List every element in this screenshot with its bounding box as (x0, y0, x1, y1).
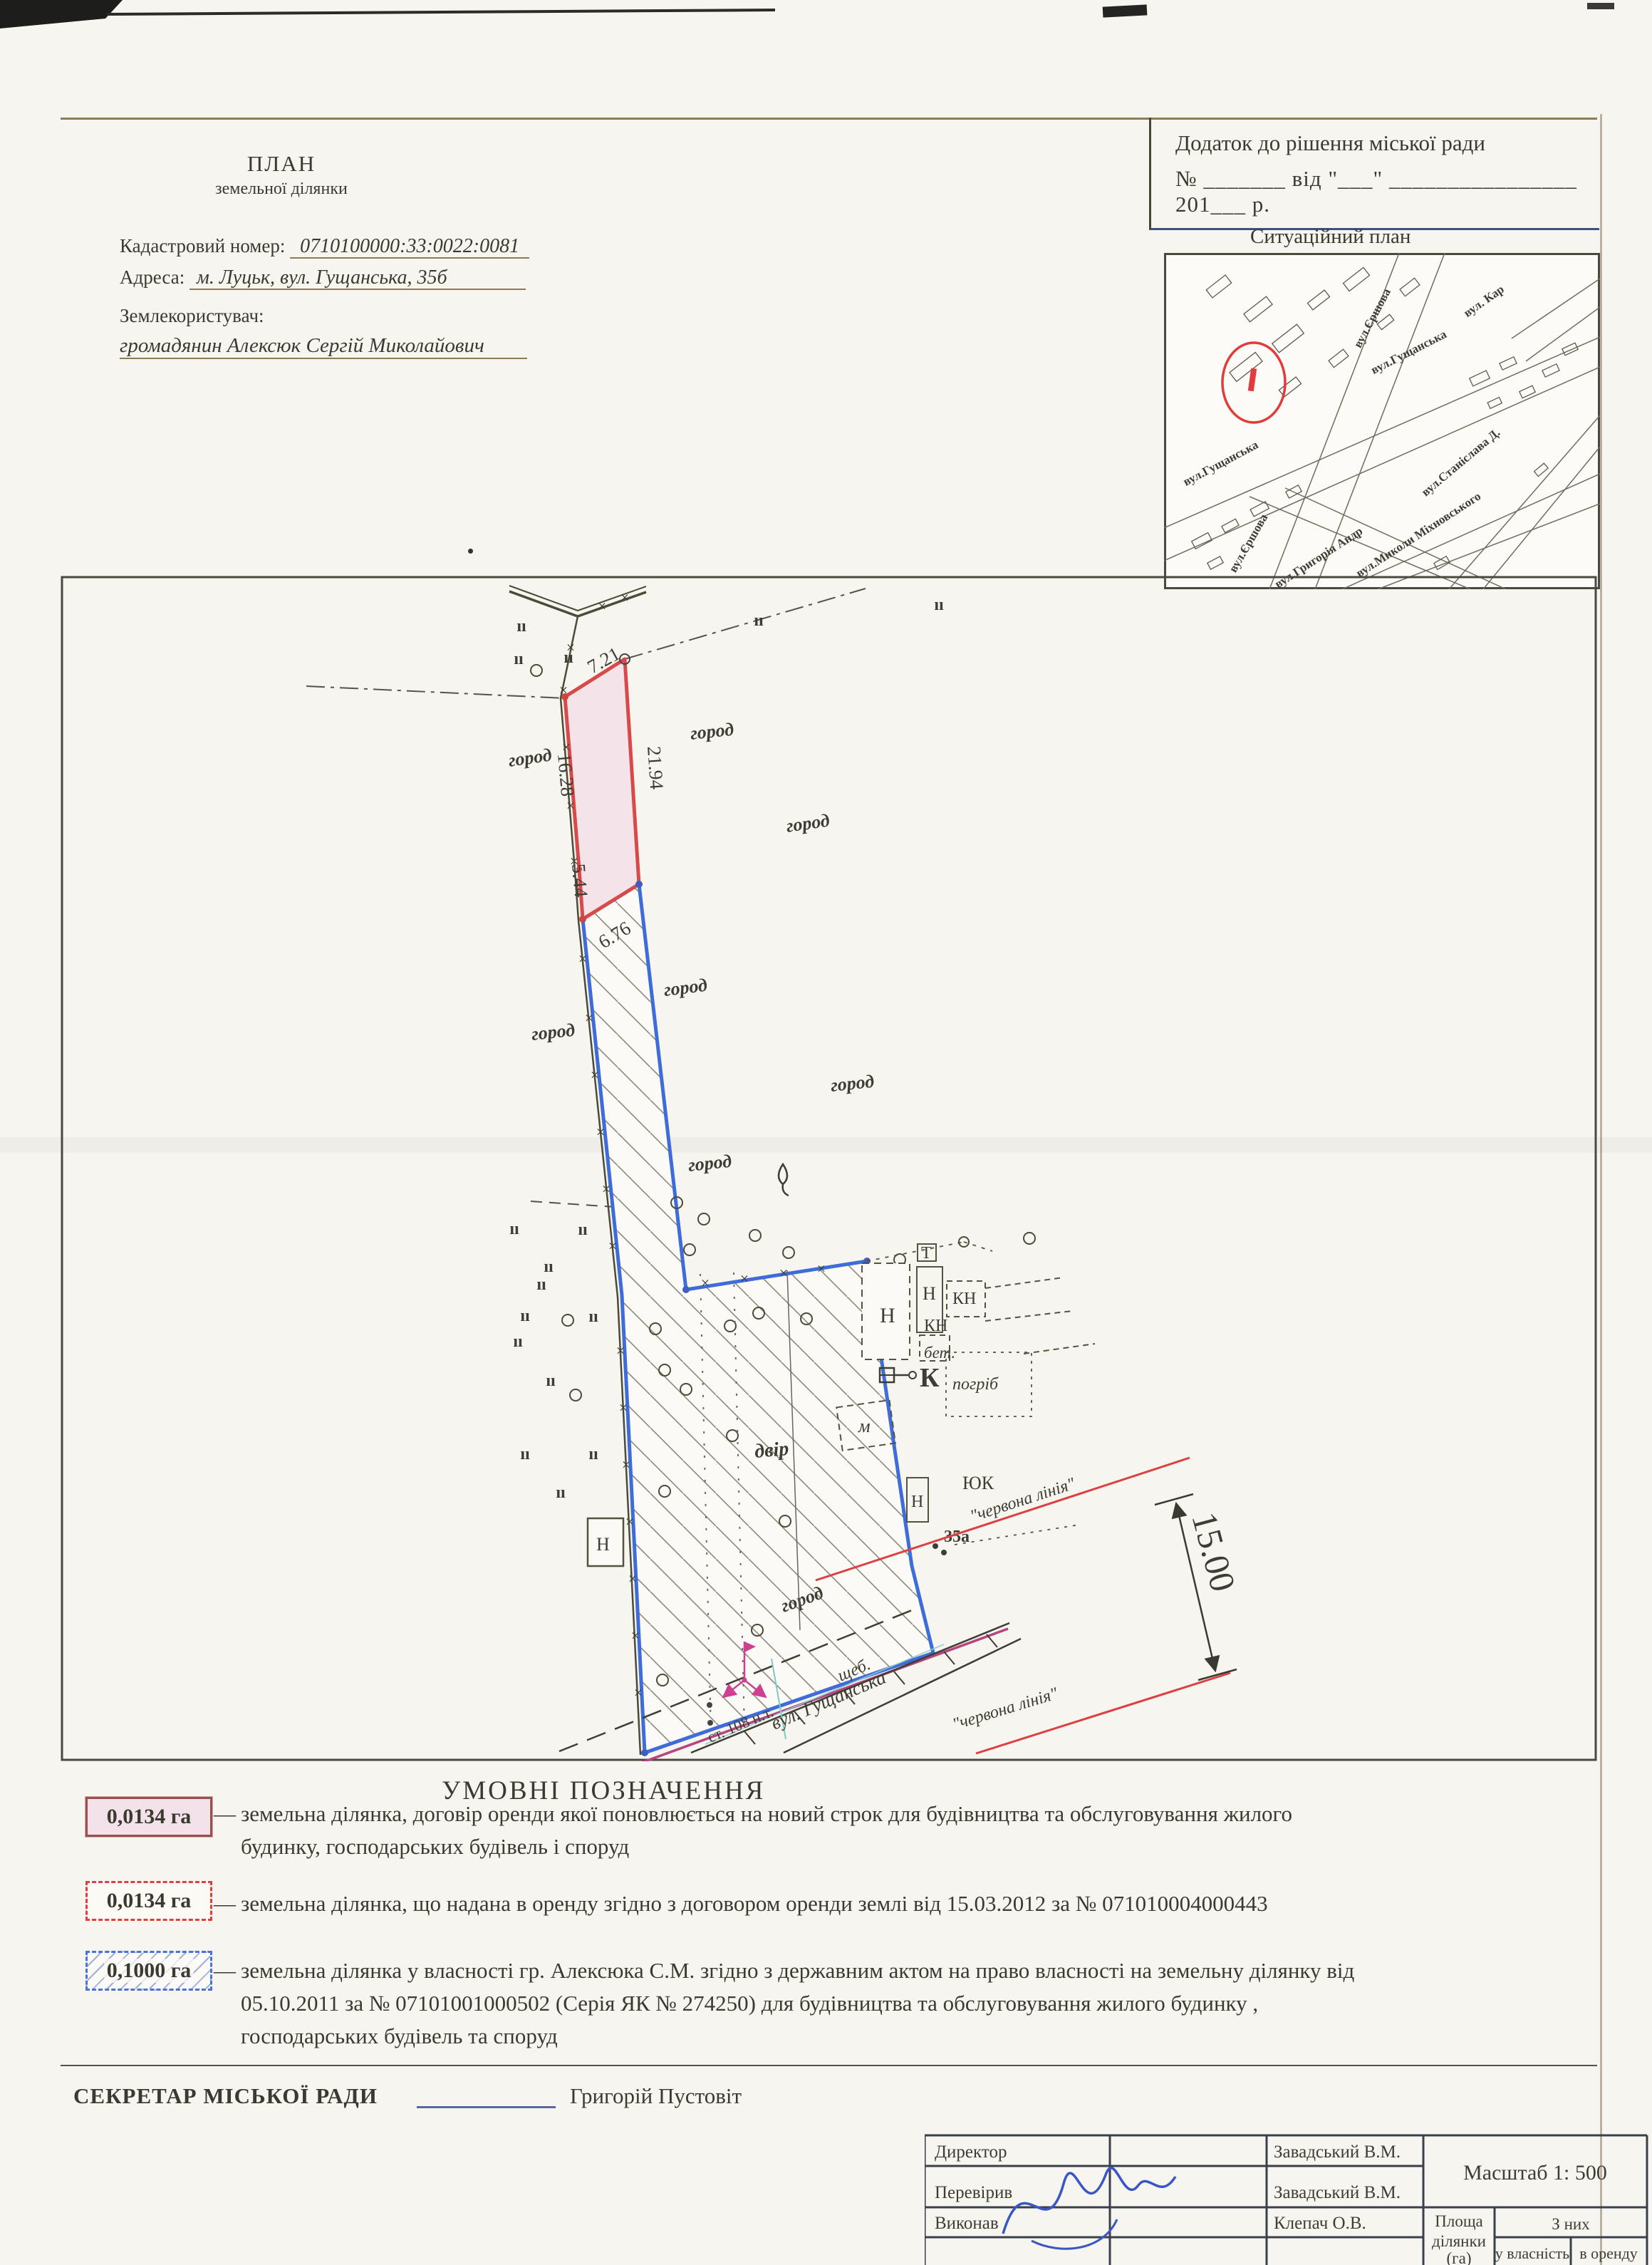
building-label-yuk: ЮК (962, 1473, 994, 1493)
grass-mark: ıı (588, 1307, 598, 1326)
table-role-executed: Виконав (935, 2214, 999, 2233)
garden-label: город (690, 719, 735, 744)
dim-15-00: 15.00 (1184, 1508, 1243, 1595)
building-label-n: Н (911, 1493, 923, 1511)
legend-symbol-owned: 0,1000 га (85, 1951, 212, 1991)
building-label-m: м (858, 1416, 871, 1436)
garden-label: город (785, 810, 831, 836)
legend-area-value: 0,0134 га (107, 1889, 192, 1913)
appendix-line-1: Додаток до рішення міської ради (1175, 130, 1599, 156)
building-label-kn: КН (952, 1290, 976, 1308)
building-label-pogrib: погріб (952, 1375, 999, 1394)
legend-area-value: 0,0134 га (107, 1805, 192, 1829)
building-label-n: Н (923, 1283, 936, 1304)
fence-tick: × (628, 1570, 637, 1587)
fence-tick: × (625, 1513, 634, 1530)
area-header-2: ділянки (1432, 2232, 1486, 2250)
fence-tick: × (608, 1237, 617, 1255)
garden-label: город (507, 745, 554, 771)
map-street-labels: вул.Єршова вул.Гущанська вул. Кар вул.Ст… (1181, 282, 1507, 589)
fence-tick: × (701, 1274, 710, 1292)
lease-header: в оренду (1579, 2244, 1638, 2262)
fence-tick: × (578, 950, 587, 968)
fence-tick: × (740, 1270, 749, 1287)
landuser-label: Землекористувач: (120, 305, 529, 327)
cadastral-label: Кадастровий номер: (120, 235, 285, 256)
grass-mark: ıı (520, 1307, 530, 1325)
grass-mark: ıı (578, 1220, 588, 1239)
title-block-table: Директор Перевірив Виконав Завадський В.… (925, 2134, 1648, 2265)
scan-dot (468, 549, 473, 554)
building-label-n: Н (880, 1304, 895, 1327)
appendix-line-2: № _______ від "___" ________________ 201… (1175, 166, 1599, 217)
address-value: м. Луцьк, вул. Гущанська, 35б (189, 266, 526, 290)
fence-tick: × (631, 1627, 640, 1644)
grass-mark: ıı (588, 1445, 598, 1463)
building-label-n: Н (596, 1534, 610, 1555)
fence-tick: × (602, 1180, 611, 1198)
main-plan-drawing: × × × × × × × × × × × × × × × × × × × × … (61, 576, 1597, 1761)
table-name-executed: Клепач О.В. (1274, 2214, 1366, 2233)
fence-tick: × (779, 1264, 788, 1282)
scan-artifacts (0, 0, 1652, 43)
scale-label: Масштаб 1: 500 (1463, 2161, 1607, 2184)
ownership-header: у власність (1495, 2244, 1569, 2262)
situational-map: вул.Єршова вул.Гущанська вул. Кар вул.Ст… (1164, 253, 1600, 589)
dim-21-94: 21.94 (643, 745, 667, 790)
legend-symbol-renewed-lease: 0,0134 га (85, 1797, 212, 1837)
grass-mark: ıı (546, 1372, 556, 1390)
map-street-label: вул.Гущанська (1181, 437, 1261, 489)
table-role-director: Директор (935, 2142, 1007, 2162)
garden-label: город (663, 975, 708, 1000)
garden-label: город (687, 1151, 733, 1176)
secretary-label: СЕКРЕТАР МІСЬКОЇ РАДИ (73, 2083, 378, 2109)
grass-mark: ıı (509, 1220, 519, 1238)
boundary-dash-line (531, 1201, 615, 1207)
appendix-box: Додаток до рішення міської ради № ______… (1149, 118, 1599, 230)
building-label-k: К (920, 1363, 940, 1393)
table-role-checked: Перевірив (935, 2183, 1012, 2202)
fence-tick: × (566, 797, 575, 814)
page-title: ПЛАН земельної ділянки (178, 151, 385, 199)
fence-tick: × (591, 1066, 599, 1084)
legend-entry1-line2: будинку, господарських будівель і споруд (241, 1834, 629, 1860)
fence-tick: × (620, 589, 629, 606)
legend-dash: — (214, 1891, 236, 1917)
legend-area-value: 0,1000 га (104, 1959, 194, 1983)
dim-16-28: 16.28 (554, 752, 578, 797)
cadastral-number-value: 0710100000:33:0022:0081 (290, 235, 529, 259)
title-line-1: ПЛАН (178, 151, 385, 177)
yard-label: двір (754, 1438, 790, 1463)
of-them-header: З них (1552, 2215, 1590, 2233)
map-street-label: вул.Гущанська (1368, 327, 1449, 377)
map-street-label: вул.Станіслава Д. (1419, 425, 1503, 499)
map-street-label: вул.Єршова (1351, 286, 1393, 350)
building-label-bet: бет. (924, 1344, 955, 1362)
fence-tick: × (817, 1260, 826, 1277)
grass-mark: ıı (514, 650, 524, 668)
fence-tick: × (596, 1123, 605, 1141)
grass-mark: ıı (520, 1445, 530, 1463)
grass-mark: ıı (544, 1258, 554, 1276)
secretary-name: Григорій Пустовіт (570, 2083, 742, 2109)
legend-entry3-line2: 05.10.2011 за № 07101001000502 (Серія ЯК… (241, 1991, 1258, 2016)
legend-entry2-line1: земельна ділянка, що надана в оренду згі… (241, 1891, 1268, 1917)
fence-tick: × (622, 1456, 630, 1473)
address-label: Адреса: (120, 266, 185, 288)
legend-entry1-line1: земельна ділянка, договір оренди якої по… (241, 1801, 1292, 1827)
legend-entry3-line3: господарських будівель та споруд (241, 2023, 558, 2049)
area-header-1: Площа (1435, 2212, 1483, 2230)
title-line-2: земельної ділянки (178, 180, 385, 199)
garden-label: город (531, 1020, 576, 1045)
building-label-kn: КН (924, 1317, 947, 1335)
fence-tick: × (619, 1399, 628, 1416)
legend-dash: — (214, 1958, 236, 1984)
grass-mark: ıı (556, 1483, 566, 1502)
grass-mark: ıı (536, 1275, 546, 1294)
dim-5-44: 5.44 (568, 863, 592, 898)
fence-tick: × (585, 1009, 593, 1027)
scanned-land-plan-document: ПЛАН земельної ділянки Додаток до рішенн… (0, 0, 1652, 2265)
secretary-signature-line (417, 2106, 556, 2108)
fence-tick: × (616, 1342, 625, 1359)
legend-dash: — (214, 1801, 236, 1827)
street-width-dimension: 15.00 (1155, 1494, 1244, 1680)
tree-symbol (779, 1164, 789, 1196)
grass-mark: ıı (934, 596, 944, 614)
handwritten-signature-loop (1032, 2219, 1117, 2249)
situational-plan-title: Ситуаційний план (1250, 225, 1411, 249)
area-header-3: (га) (1447, 2249, 1472, 2265)
page-edge-shadow (1600, 114, 1602, 2265)
grass-mark: ıı (754, 611, 764, 630)
grass-mark: ıı (513, 1332, 523, 1351)
table-name-director: Завадський В.М. (1274, 2142, 1401, 2162)
fence-tick: × (598, 597, 606, 615)
garden-label: город (830, 1071, 876, 1096)
table-name-checked: Завадський В.М. (1274, 2183, 1401, 2202)
map-street-label: вул. Кар (1461, 282, 1507, 320)
map-buildings (1192, 267, 1578, 569)
fence-tick: × (634, 1684, 643, 1701)
handwritten-signature (1003, 2168, 1175, 2234)
grass-mark: ıı (516, 617, 526, 636)
legend-bottom-rule (61, 2065, 1597, 2066)
landuser-value: громадянин Алексюк Сергій Миколайович (120, 334, 527, 359)
red-line-label-lower: "червона лінія" (950, 1684, 1061, 1734)
legend-entry3-line1: земельна ділянка у власності гр. Алексюк… (241, 1958, 1354, 1984)
grass-mark: ıı (563, 648, 573, 667)
building-label-t: Т (921, 1244, 932, 1263)
cadastral-block: Кадастровий номер: 0710100000:33:0022:00… (120, 235, 529, 359)
legend-symbol-current-lease: 0,0134 га (85, 1881, 212, 1921)
